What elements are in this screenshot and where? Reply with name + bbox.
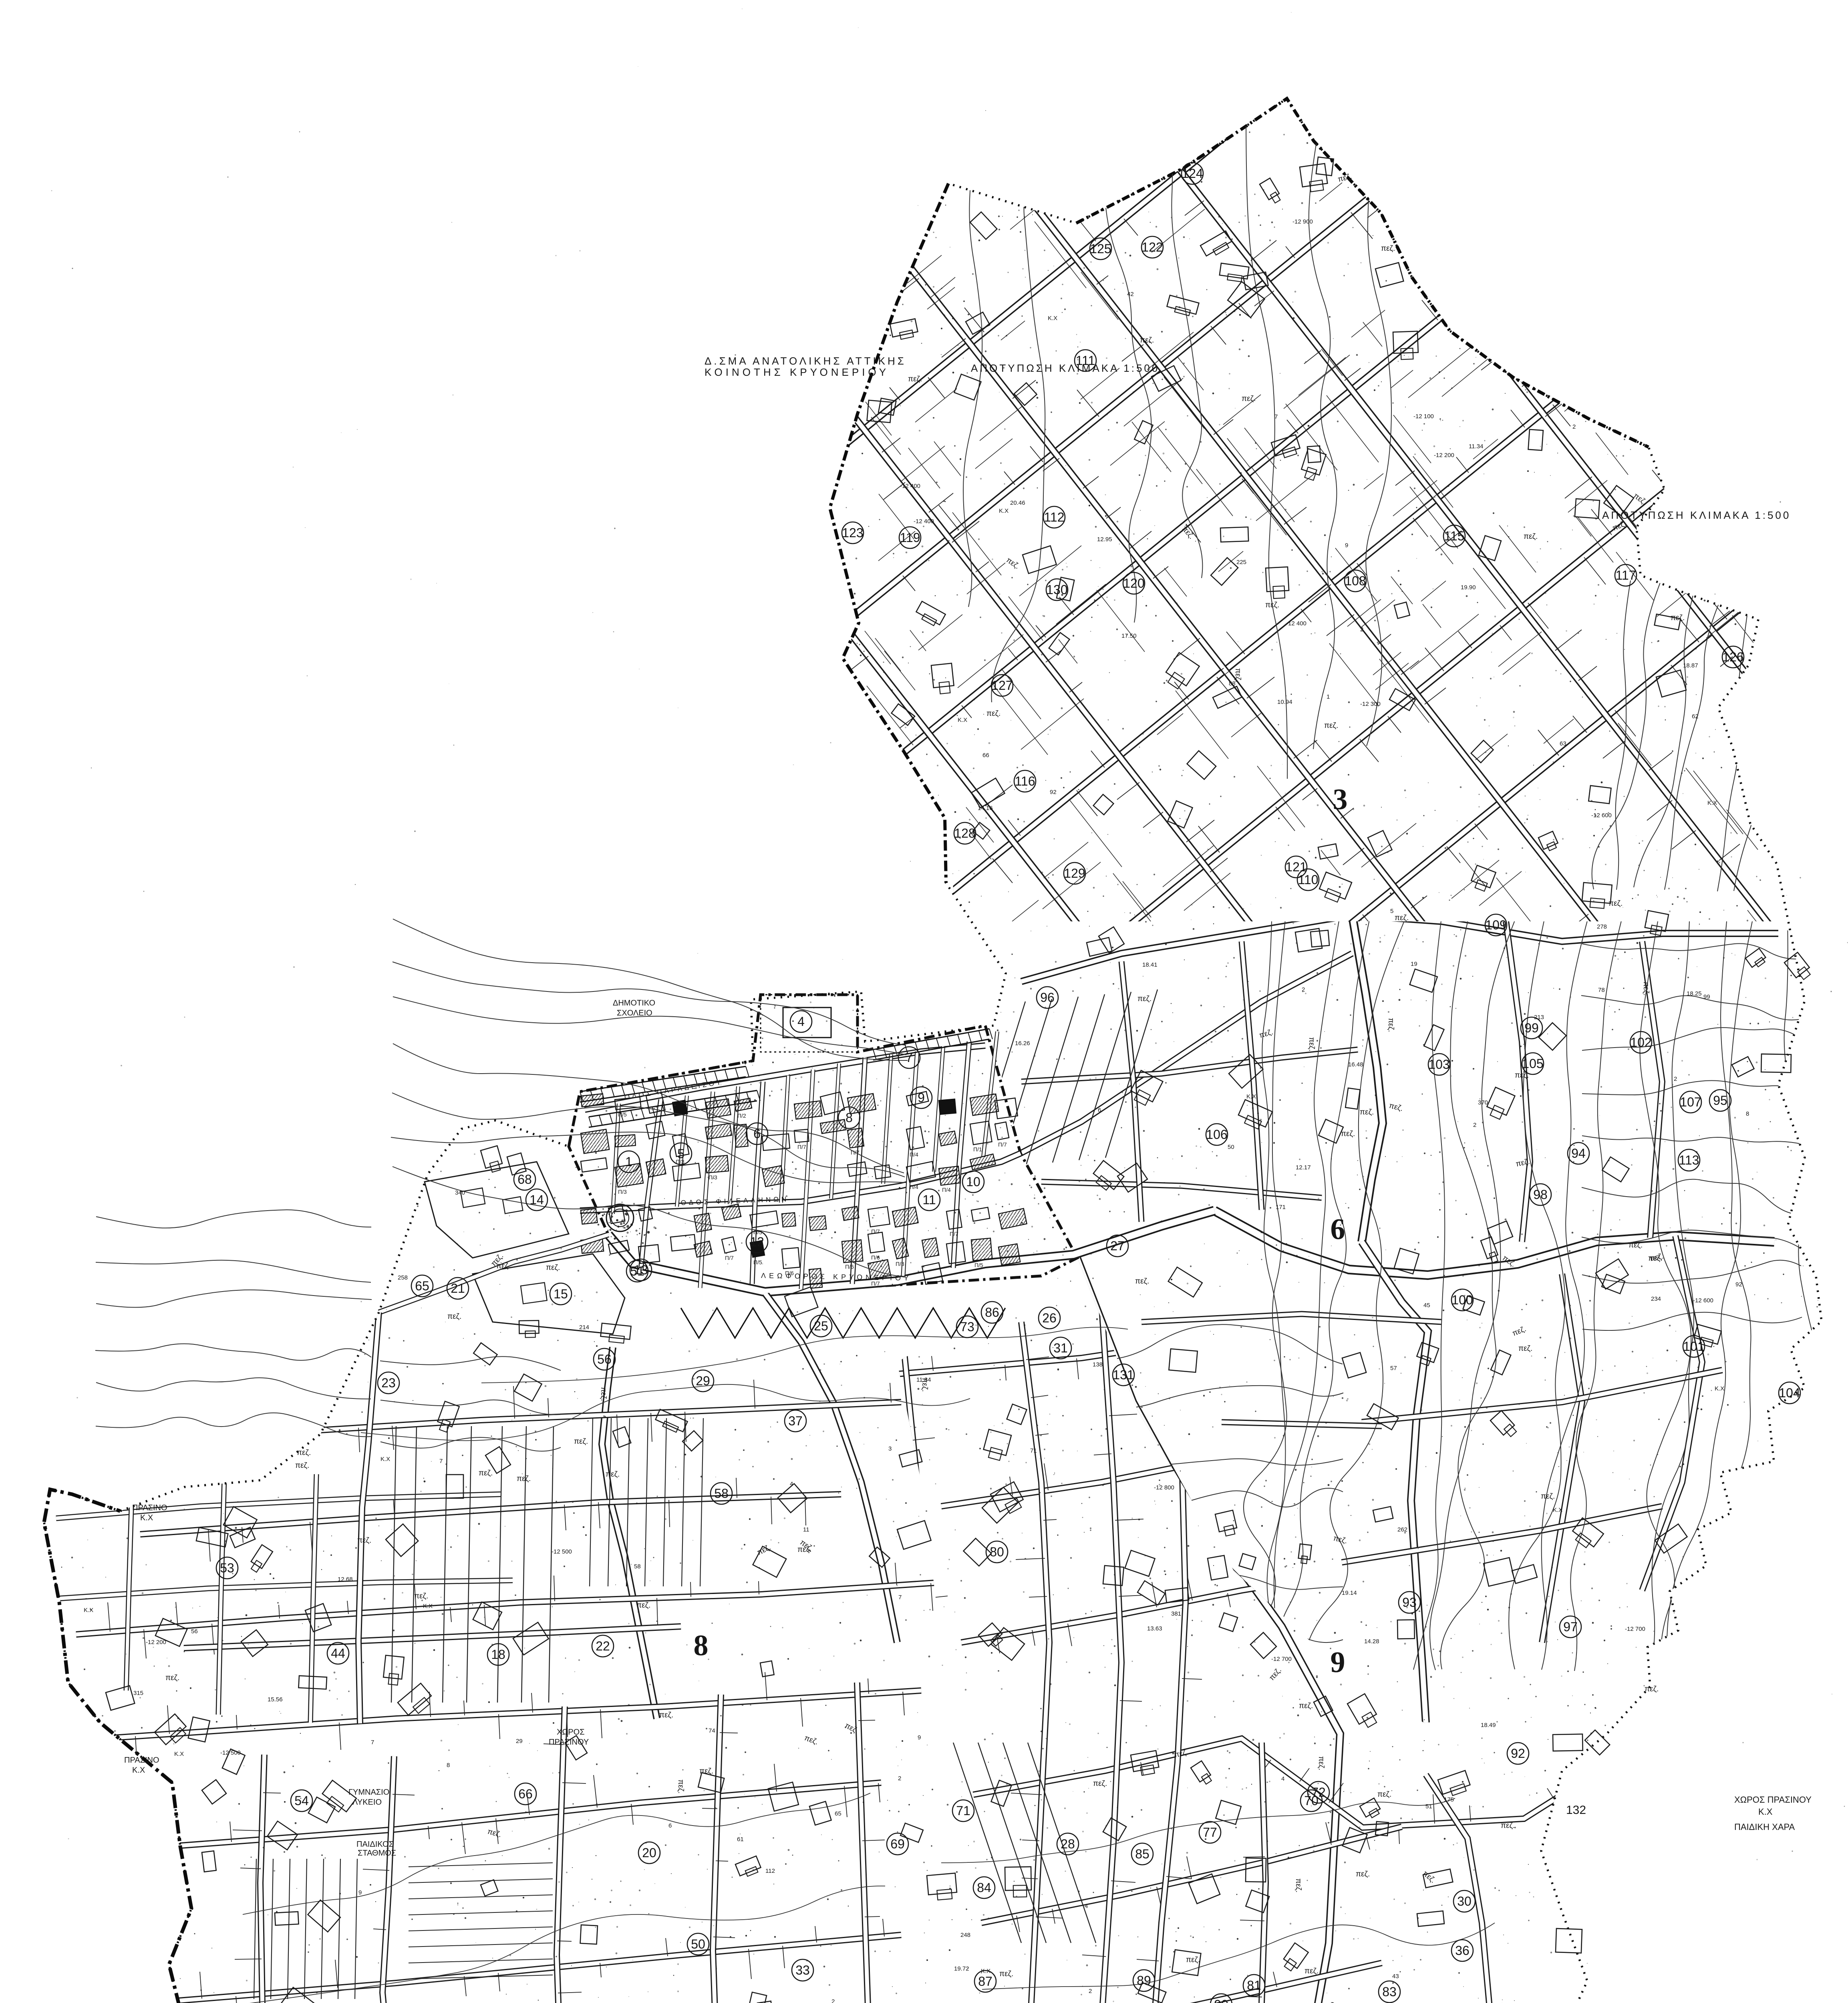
svg-text:8: 8	[694, 1629, 709, 1662]
svg-text:πεζ.: πεζ.	[676, 1779, 685, 1793]
svg-text:8: 8	[447, 1762, 450, 1769]
svg-text:103: 103	[1428, 1057, 1449, 1072]
svg-text:πεζ.: πεζ.	[1518, 1344, 1532, 1353]
svg-text:πεζ.: πεζ.	[479, 1469, 493, 1477]
svg-text:4: 4	[1085, 1903, 1088, 1910]
svg-text:20.46: 20.46	[1010, 500, 1025, 506]
svg-text:-12 200: -12 200	[146, 1639, 166, 1646]
svg-text:πεζ.: πεζ.	[297, 1449, 311, 1457]
svg-text:ΠΡΑΣΙΝΟΥ: ΠΡΑΣΙΝΟΥ	[549, 1738, 589, 1747]
svg-text:πεζ.: πεζ.	[1381, 244, 1395, 253]
svg-text:Π/3: Π/3	[709, 1174, 717, 1181]
svg-text:14.28: 14.28	[1364, 1638, 1379, 1645]
svg-text:14.16: 14.16	[978, 805, 993, 812]
svg-text:-12 700: -12 700	[1271, 1656, 1292, 1662]
svg-text:πεζ.: πεζ.	[447, 1312, 461, 1321]
svg-text:Π/6: Π/6	[845, 1263, 854, 1270]
svg-text:42: 42	[1127, 291, 1134, 298]
svg-text:14: 14	[529, 1193, 544, 1207]
svg-text:6: 6	[753, 1126, 761, 1141]
svg-text:45: 45	[1423, 1302, 1430, 1309]
svg-text:62: 62	[1692, 713, 1699, 720]
svg-text:πεζ.: πεζ.	[1140, 336, 1154, 345]
svg-text:Κ.Χ: Κ.Χ	[1246, 1093, 1256, 1100]
svg-text:122: 122	[1141, 240, 1163, 254]
svg-text:πεζ.: πεζ.	[1541, 1492, 1555, 1501]
svg-text:19.90: 19.90	[1461, 584, 1476, 591]
svg-text:Κ.Χ: Κ.Χ	[84, 1607, 93, 1614]
svg-text:Π/7: Π/7	[797, 1144, 806, 1150]
svg-text:18.25: 18.25	[1687, 990, 1702, 997]
svg-text:-12 400: -12 400	[900, 483, 920, 490]
svg-text:πεζ.: πεζ.	[1304, 1967, 1319, 1975]
svg-text:44: 44	[331, 1646, 345, 1660]
svg-text:1: 1	[625, 1155, 632, 1169]
svg-text:104: 104	[1779, 1386, 1800, 1400]
svg-text:πεζ.: πεζ.	[1356, 1870, 1370, 1878]
svg-text:Κ.Χ: Κ.Χ	[380, 1456, 390, 1463]
svg-text:80: 80	[990, 1545, 1004, 1559]
svg-text:18: 18	[491, 1647, 505, 1662]
svg-text:101: 101	[1683, 1339, 1704, 1354]
svg-text:7: 7	[898, 1594, 902, 1601]
svg-text:πεζ.: πεζ.	[1515, 1071, 1529, 1080]
svg-text:18.41: 18.41	[1142, 961, 1158, 968]
svg-text:131: 131	[1113, 1368, 1134, 1382]
svg-text:58: 58	[634, 1563, 641, 1570]
svg-text:πεζ.: πεζ.	[986, 709, 1000, 718]
svg-text:73: 73	[960, 1320, 974, 1334]
svg-text:37: 37	[788, 1414, 803, 1428]
svg-text:3: 3	[1333, 783, 1348, 816]
svg-text:138: 138	[1093, 1361, 1103, 1368]
svg-text:Κ.Χ: Κ.Χ	[140, 1513, 153, 1522]
svg-text:43: 43	[1392, 1973, 1399, 1980]
svg-text:11: 11	[803, 1526, 809, 1533]
svg-text:30: 30	[1457, 1894, 1472, 1908]
svg-text:ΠΡΑΣΙΝΟ: ΠΡΑΣΙΝΟ	[124, 1756, 159, 1765]
svg-text:ΠΑΙΔΙΚΟΣ: ΠΑΙΔΙΚΟΣ	[356, 1840, 394, 1849]
svg-text:2: 2	[1572, 423, 1576, 430]
svg-text:26: 26	[1042, 1311, 1057, 1325]
svg-text:51: 51	[1425, 1803, 1432, 1810]
svg-text:-12 300: -12 300	[1360, 701, 1381, 707]
svg-text:πεζ.: πεζ.	[659, 1711, 673, 1719]
svg-text:96: 96	[1040, 990, 1055, 1005]
svg-text:πεζ.: πεζ.	[636, 1601, 650, 1610]
svg-text:9: 9	[358, 1889, 362, 1896]
svg-text:58: 58	[714, 1486, 729, 1501]
svg-text:18.87: 18.87	[1683, 662, 1698, 669]
svg-text:56: 56	[191, 1628, 198, 1635]
svg-text:πεζ.: πεζ.	[1186, 1956, 1200, 1964]
svg-text:πεζ.: πεζ.	[1387, 1018, 1395, 1032]
svg-text:ΣΤΑΘΜΟΣ: ΣΤΑΘΜΟΣ	[358, 1849, 396, 1858]
svg-text:98: 98	[1533, 1187, 1548, 1202]
svg-text:262: 262	[1397, 1526, 1407, 1533]
svg-text:5: 5	[1390, 908, 1393, 915]
svg-text:Π/4: Π/4	[910, 1184, 918, 1190]
svg-text:πεζ.: πεζ.	[1629, 1241, 1643, 1249]
svg-text:53: 53	[220, 1561, 234, 1575]
svg-text:171: 171	[1276, 1204, 1286, 1211]
svg-text:Π/4: Π/4	[910, 1151, 918, 1158]
svg-text:πεζ.: πεζ.	[606, 1470, 620, 1479]
svg-text:6: 6	[1098, 1107, 1101, 1114]
svg-text:Π/7: Π/7	[725, 1255, 734, 1261]
svg-text:83: 83	[1382, 1985, 1397, 1999]
svg-text:381: 381	[1171, 1610, 1181, 1617]
svg-text:ΚΟΙΝΟΤΗΣ ΚΡΥΟΝΕΡΙΟΥ: ΚΟΙΝΟΤΗΣ ΚΡΥΟΝΕΡΙΟΥ	[705, 366, 889, 378]
svg-text:Π/5: Π/5	[753, 1259, 762, 1265]
svg-text:6: 6	[668, 1822, 672, 1829]
svg-text:65: 65	[835, 1810, 841, 1817]
svg-text:10.94: 10.94	[1277, 699, 1292, 705]
svg-text:10: 10	[966, 1175, 980, 1189]
svg-text:ΛΥΚΕΙΟ: ΛΥΚΕΙΟ	[352, 1798, 382, 1807]
svg-text:278: 278	[1597, 923, 1607, 930]
svg-text:66: 66	[982, 752, 989, 759]
svg-text:πεζ.: πεζ.	[1317, 1756, 1325, 1770]
svg-text:Π/7: Π/7	[950, 1231, 958, 1237]
svg-text:127: 127	[991, 678, 1013, 693]
svg-text:2: 2	[1360, 626, 1363, 633]
svg-text:94: 94	[1571, 1146, 1586, 1161]
svg-text:13.63: 13.63	[1147, 1625, 1162, 1632]
svg-text:πεζ.: πεζ.	[574, 1437, 588, 1446]
svg-text:-12 400: -12 400	[1286, 620, 1306, 627]
svg-text:πεζ.: πεζ.	[546, 1263, 560, 1272]
svg-text:πεζ.: πεζ.	[1645, 1685, 1659, 1693]
svg-text:2: 2	[1089, 1988, 1092, 1995]
svg-text:πεζ.: πεζ.	[699, 1767, 713, 1775]
svg-text:17.50: 17.50	[1121, 633, 1137, 639]
svg-text:-12 500: -12 500	[220, 1749, 241, 1756]
svg-text:πεζ.: πεζ.	[1341, 1130, 1355, 1138]
svg-text:88: 88	[1229, 680, 1236, 687]
svg-text:92: 92	[1735, 1281, 1742, 1288]
svg-text:110: 110	[1298, 873, 1318, 887]
svg-text:Κ.Χ: Κ.Χ	[1048, 315, 1057, 322]
svg-text:29: 29	[516, 1738, 523, 1745]
svg-text:-12 100: -12 100	[1413, 413, 1434, 420]
svg-text:12.68: 12.68	[338, 1576, 353, 1583]
svg-text:63: 63	[1560, 740, 1566, 747]
svg-text:68: 68	[517, 1172, 532, 1187]
svg-text:84: 84	[977, 1880, 991, 1895]
svg-text:Π/4: Π/4	[942, 1187, 951, 1193]
svg-text:ΣΧΟΛΕΙΟ: ΣΧΟΛΕΙΟ	[617, 1009, 652, 1018]
svg-text:315: 315	[133, 1690, 143, 1697]
svg-text:πεζ.: πεζ.	[1395, 914, 1409, 922]
svg-text:2: 2	[898, 1775, 901, 1782]
svg-text:-12 200: -12 200	[1434, 452, 1454, 459]
svg-text:121: 121	[1285, 860, 1306, 874]
svg-text:12.17: 12.17	[1296, 1164, 1311, 1171]
svg-text:πεζ.: πεζ.	[1299, 1702, 1313, 1710]
svg-text:71: 71	[956, 1804, 970, 1818]
svg-text:1: 1	[1327, 693, 1330, 700]
svg-text:74: 74	[709, 1727, 715, 1734]
svg-text:71: 71	[1030, 1447, 1037, 1454]
svg-text:50: 50	[1228, 1144, 1234, 1151]
svg-text:95: 95	[1713, 1093, 1727, 1108]
svg-text:99: 99	[1524, 1021, 1539, 1035]
svg-text:20: 20	[642, 1846, 656, 1860]
svg-text:61: 61	[737, 1836, 744, 1843]
svg-text:πεζ.: πεζ.	[1642, 981, 1650, 995]
svg-text:Κ.Χ: Κ.Χ	[981, 1968, 990, 1975]
svg-text:234: 234	[1651, 1296, 1661, 1302]
svg-text:πεζ.: πεζ.	[1360, 1108, 1374, 1116]
svg-text:6: 6	[1331, 1213, 1345, 1246]
svg-text:13: 13	[634, 1263, 648, 1277]
svg-text:225: 225	[1236, 559, 1246, 566]
svg-text:213: 213	[1534, 1014, 1544, 1021]
svg-text:66: 66	[518, 1787, 533, 1801]
svg-text:ΠΑΙΔΙΚΗ ΧΑΡΑ: ΠΑΙΔΙΚΗ ΧΑΡΑ	[1734, 1822, 1795, 1832]
svg-text:120: 120	[1123, 576, 1144, 590]
svg-text:123: 123	[842, 526, 863, 540]
svg-text:ΠΡΑΣΙΝΟ: ΠΡΑΣΙΝΟ	[132, 1503, 167, 1512]
svg-text:Κ.Χ: Κ.Χ	[1715, 1385, 1724, 1392]
svg-text:86: 86	[985, 1305, 999, 1320]
svg-text:106: 106	[1206, 1127, 1227, 1142]
svg-text:ΧΩΡΟΣ ΠΡΑΣΙΝΟΥ: ΧΩΡΟΣ ΠΡΑΣΙΝΟΥ	[1734, 1795, 1812, 1805]
svg-text:116: 116	[1015, 774, 1035, 788]
svg-text:50: 50	[691, 1937, 705, 1951]
svg-text:370: 370	[1478, 1099, 1488, 1106]
svg-text:7: 7	[371, 1739, 374, 1746]
svg-text:85: 85	[1135, 1847, 1149, 1861]
svg-text:Κ.Χ: Κ.Χ	[958, 717, 967, 723]
svg-text:100: 100	[1451, 1293, 1473, 1307]
svg-text:15.56: 15.56	[268, 1696, 283, 1703]
svg-text:248: 248	[960, 1932, 970, 1939]
svg-text:-12 500: -12 500	[552, 1548, 572, 1555]
svg-text:19: 19	[1411, 961, 1417, 967]
svg-text:2: 2	[1302, 986, 1305, 993]
svg-text:113: 113	[1679, 1153, 1699, 1167]
svg-text:109: 109	[1485, 918, 1506, 932]
svg-text:Κ.Χ: Κ.Χ	[1758, 1807, 1773, 1817]
svg-text:πεζ.: πεζ.	[1307, 1037, 1316, 1051]
svg-text:Π/5: Π/5	[618, 1111, 627, 1118]
svg-text:214: 214	[579, 1324, 589, 1331]
svg-text:Κ.Χ: Κ.Χ	[1707, 800, 1717, 806]
svg-text:πεζ.: πεζ.	[1377, 1790, 1391, 1799]
svg-text:πεζ.: πεζ.	[1294, 1878, 1302, 1892]
svg-text:9: 9	[1345, 542, 1348, 549]
svg-text:15: 15	[554, 1287, 568, 1301]
svg-text:92: 92	[1050, 789, 1057, 796]
svg-text:97: 97	[1563, 1620, 1578, 1634]
svg-text:9: 9	[1331, 1646, 1345, 1679]
svg-text:36: 36	[1455, 1943, 1470, 1958]
svg-text:-12 700: -12 700	[1625, 1626, 1645, 1632]
svg-text:27: 27	[1110, 1239, 1125, 1253]
svg-text:ΑΠΟΤΥΠΩΣΗ ΚΛΙΜΑΚΑ 1:500: ΑΠΟΤΥΠΩΣΗ ΚΛΙΜΑΚΑ 1:500	[971, 362, 1160, 374]
svg-text:87: 87	[978, 1974, 992, 1989]
svg-text:23: 23	[381, 1376, 396, 1390]
svg-text:πεζ.: πεζ.	[1608, 899, 1623, 908]
svg-text:4: 4	[790, 1481, 793, 1487]
svg-text:115: 115	[1444, 529, 1464, 543]
svg-text:πεζ.: πεζ.	[1135, 1277, 1149, 1286]
svg-text:ΓΥΜΝΑΣΙΟ: ΓΥΜΝΑΣΙΟ	[348, 1788, 389, 1797]
svg-text:31: 31	[1053, 1341, 1068, 1355]
svg-text:56: 56	[597, 1352, 612, 1366]
svg-text:2: 2	[831, 1998, 835, 2003]
svg-text:258: 258	[398, 1274, 408, 1281]
svg-text:πεζ.: πεζ.	[295, 1461, 309, 1470]
svg-text:130: 130	[1046, 582, 1067, 597]
svg-text:119: 119	[900, 530, 920, 545]
svg-text:πεζ.: πεζ.	[1324, 721, 1338, 730]
svg-text:81: 81	[1247, 1978, 1261, 1993]
svg-text:ΔΗΜΟΤΙΚΟ: ΔΗΜΟΤΙΚΟ	[613, 999, 655, 1008]
svg-text:125: 125	[1090, 242, 1111, 256]
svg-text:340: 340	[455, 1189, 465, 1196]
svg-text:117: 117	[1615, 568, 1636, 582]
svg-text:12.95: 12.95	[1097, 536, 1112, 543]
svg-text:25: 25	[814, 1319, 828, 1333]
svg-text:Π/5: Π/5	[974, 1262, 983, 1268]
svg-text:16.48: 16.48	[1348, 1061, 1363, 1068]
svg-text:126: 126	[1722, 650, 1743, 664]
svg-text:18.49: 18.49	[1481, 1722, 1496, 1729]
svg-text:8: 8	[845, 1110, 853, 1125]
svg-text:108: 108	[1345, 574, 1366, 588]
svg-text:3: 3	[888, 1445, 892, 1452]
svg-text:90: 90	[1214, 1997, 1228, 2003]
svg-text:112: 112	[1044, 510, 1064, 524]
svg-text:-12 600: -12 600	[1693, 1297, 1713, 1304]
svg-text:92: 92	[1511, 1746, 1525, 1761]
svg-text:πεζ.: πεζ.	[908, 375, 922, 383]
svg-text:28: 28	[1061, 1837, 1075, 1851]
svg-text:πεζ.: πεζ.	[414, 1592, 428, 1600]
svg-text:4: 4	[1281, 1775, 1284, 1782]
svg-text:Π/3: Π/3	[896, 1261, 904, 1267]
svg-text:19.72: 19.72	[954, 1965, 969, 1972]
svg-text:54: 54	[294, 1793, 309, 1808]
svg-text:112: 112	[765, 1868, 775, 1874]
svg-text:57: 57	[1390, 1365, 1397, 1372]
svg-text:78: 78	[1598, 987, 1605, 993]
svg-text:πεζ.: πεζ.	[357, 1536, 371, 1545]
svg-text:128: 128	[954, 826, 975, 840]
svg-text:2: 2	[1674, 1076, 1677, 1082]
svg-text:πεζ.: πεζ.	[1501, 1822, 1515, 1830]
svg-text:ΑΠΟΤΥΠΩΣΗ ΚΛΙΜΑΚΑ 1:500: ΑΠΟΤΥΠΩΣΗ ΚΛΙΜΑΚΑ 1:500	[1602, 509, 1791, 521]
svg-text:21: 21	[451, 1281, 465, 1296]
svg-text:Π/7: Π/7	[998, 1141, 1007, 1148]
svg-text:πεζ.: πεζ.	[599, 1387, 608, 1401]
svg-text:πεζ.: πεζ.	[1524, 532, 1538, 541]
svg-text:πεζ.: πεζ.	[999, 1970, 1013, 1978]
svg-text:129: 129	[1064, 866, 1085, 881]
svg-text:105: 105	[1522, 1056, 1543, 1071]
svg-text:Κ.Χ: Κ.Χ	[132, 1766, 145, 1775]
svg-text:πεζ.: πεζ.	[1137, 995, 1151, 1003]
svg-text:Π/1: Π/1	[973, 1146, 982, 1153]
svg-text:πεζ.: πεζ.	[1265, 601, 1279, 609]
svg-text:102: 102	[1630, 1035, 1651, 1050]
svg-text:8: 8	[1746, 1110, 1749, 1117]
svg-text:πεζ.: πεζ.	[165, 1674, 179, 1682]
svg-text:-12 900: -12 900	[1292, 218, 1313, 225]
svg-text:19.14: 19.14	[1342, 1590, 1357, 1596]
svg-text:22: 22	[596, 1639, 610, 1653]
svg-text:πεζ.: πεζ.	[1093, 1779, 1107, 1788]
svg-text:Π/2: Π/2	[737, 1112, 746, 1119]
svg-text:12: 12	[750, 1235, 764, 1249]
svg-text:16.26: 16.26	[1015, 1040, 1030, 1047]
svg-text:77: 77	[1203, 1825, 1217, 1840]
svg-text:69: 69	[890, 1837, 905, 1851]
svg-text:33: 33	[795, 1963, 810, 1977]
svg-text:Κ.Χ: Κ.Χ	[999, 508, 1009, 514]
svg-text:72: 72	[1311, 1785, 1326, 1799]
svg-text:ΧΩΡΟΣ: ΧΩΡΟΣ	[557, 1728, 585, 1737]
svg-text:Κ.Χ: Κ.Χ	[174, 1751, 184, 1757]
svg-text:4: 4	[797, 1014, 805, 1029]
svg-text:11: 11	[922, 1193, 936, 1207]
svg-text:9: 9	[918, 1090, 925, 1105]
svg-text:πεζ.: πεζ.	[517, 1475, 531, 1483]
svg-text:Κ.Χ: Κ.Χ	[423, 1603, 433, 1610]
svg-text:9: 9	[918, 1734, 921, 1741]
svg-text:πεζ.: πεζ.	[1322, 2001, 1336, 2003]
svg-text:Δ.ΣΜΑ ΑΝΑΤΟΛΙΚΗΣ ΑΤΤΙΚΗΣ: Δ.ΣΜΑ ΑΝΑΤΟΛΙΚΗΣ ΑΤΤΙΚΗΣ	[705, 355, 906, 367]
svg-text:-12 800: -12 800	[1154, 1484, 1174, 1491]
svg-text:2: 2	[1473, 1122, 1476, 1128]
svg-text:107: 107	[1680, 1095, 1701, 1109]
svg-text:29: 29	[696, 1374, 710, 1388]
svg-text:7: 7	[906, 1050, 913, 1065]
svg-text:93: 93	[1402, 1595, 1417, 1610]
svg-text:175: 175	[1444, 1796, 1454, 1803]
svg-text:Π/3: Π/3	[618, 1189, 627, 1195]
svg-text:99: 99	[1703, 993, 1710, 1000]
svg-text:πεζ.: πεζ.	[1242, 395, 1256, 403]
svg-text:Κ.Χ: Κ.Χ	[1553, 1507, 1562, 1513]
svg-text:11.84: 11.84	[916, 1376, 931, 1383]
svg-text:7: 7	[439, 1458, 443, 1465]
svg-text:7: 7	[1274, 413, 1278, 420]
svg-text:65: 65	[415, 1279, 429, 1293]
svg-text:πεζ.: πεζ.	[1671, 614, 1685, 622]
svg-text:89: 89	[1137, 1973, 1151, 1988]
svg-text:-12 400: -12 400	[914, 518, 934, 525]
svg-text:124: 124	[1182, 166, 1203, 181]
svg-text:132: 132	[1566, 1804, 1586, 1817]
svg-text:11.34: 11.34	[1469, 443, 1483, 450]
